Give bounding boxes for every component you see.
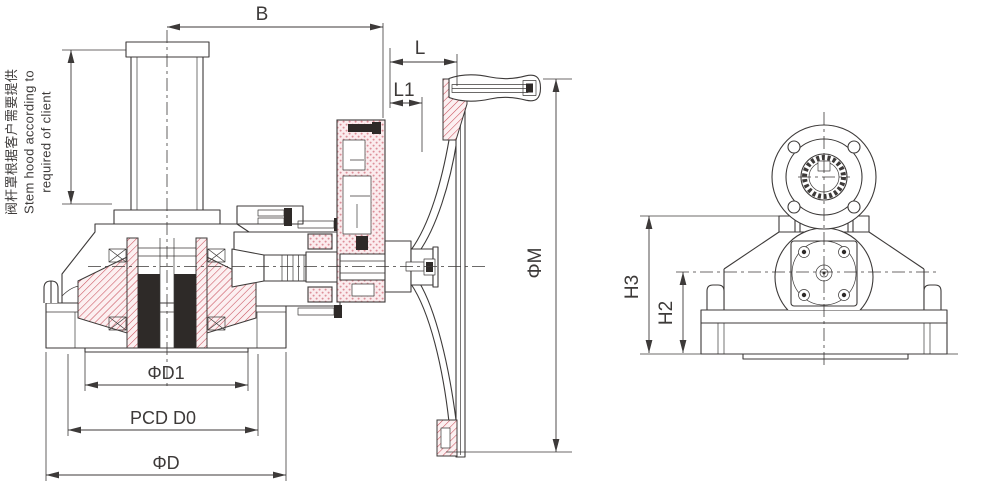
- note-line-chinese: 阀杆罩根据客户需要提供: [4, 69, 19, 215]
- phi-d1-label: ΦD1: [147, 363, 184, 383]
- stud-head-top: [284, 208, 292, 217]
- worm-spline-section: [264, 255, 306, 281]
- handle-end-core: [526, 84, 533, 93]
- right-view-section: H3 H2: [622, 112, 958, 368]
- cover-window-1: [343, 140, 365, 170]
- cover-top-bolt: [348, 124, 372, 132]
- input-shaft-exit: [340, 254, 386, 280]
- flange-bolt-hole: [788, 201, 800, 213]
- shaft-step: [306, 252, 340, 282]
- dimension-hood-height: [62, 50, 126, 204]
- flange-bolt-hole: [788, 141, 800, 153]
- technical-drawing: B L L1 ΦM ΦD1: [0, 0, 1001, 503]
- plate-bolt-core: [802, 293, 806, 297]
- l-label: L: [415, 38, 426, 59]
- stem-nut-right: [174, 274, 196, 348]
- handwheel: [385, 75, 541, 457]
- stud-head-bottom: [284, 217, 292, 226]
- drawing-canvas: B L L1 ΦM ΦD1: [0, 0, 1001, 503]
- spoke-top: [411, 140, 457, 252]
- cover-housing: [337, 120, 386, 302]
- pcd-d0-label: PCD D0: [130, 408, 196, 428]
- base-spigot: [85, 348, 248, 352]
- cover-internal-block: [356, 236, 368, 250]
- stem-hood-note: 阀杆罩根据客户需要提供 Stem hood according to requi…: [4, 69, 54, 215]
- rim-section-hole: [441, 428, 450, 448]
- spoke-bottom: [411, 282, 456, 422]
- bearing-boss: [237, 206, 303, 224]
- left-view-section: B L L1 ΦM ΦD1: [4, 4, 572, 481]
- cover-window-3: [352, 284, 374, 296]
- stem-nut-left: [138, 274, 160, 348]
- rv-bottom-plate: [743, 354, 908, 359]
- nut-sleeve-left: [127, 238, 138, 348]
- flange-bolt-hole: [848, 201, 860, 213]
- h3-label: H3: [622, 275, 643, 299]
- phi-d-label: ΦD: [152, 453, 179, 473]
- hub-nut-core: [426, 262, 433, 272]
- plate-bolt-core: [842, 250, 846, 254]
- phi-m-label: ΦM: [525, 248, 546, 279]
- bearing-cap-bottom: [308, 287, 332, 302]
- left-boss: [44, 281, 58, 303]
- dimension-h2: H2: [656, 272, 683, 353]
- hood-cap: [126, 42, 209, 57]
- l1-label: L1: [393, 80, 414, 101]
- plate-bolt-core: [802, 250, 806, 254]
- flange-bolt-hole: [848, 141, 860, 153]
- dimension-l1: L1: [390, 80, 422, 152]
- worm-cone: [232, 249, 264, 287]
- cap-bolt-bottom: [298, 308, 334, 315]
- rv-side-lug-left: [707, 285, 724, 310]
- plate-bolt-core: [842, 293, 846, 297]
- cap-bolt-bottom-head: [334, 305, 342, 318]
- nut-sleeve-right: [196, 238, 207, 348]
- dimension-phi-d1: ΦD1: [85, 352, 248, 391]
- bearing-cap-top: [308, 234, 332, 249]
- cover-top-bolt-head: [372, 122, 381, 134]
- note-line-english-2: required of client: [39, 91, 54, 193]
- hood-extension-lines: [62, 50, 126, 204]
- h2-label: H2: [656, 301, 677, 325]
- b-label: B: [256, 4, 269, 25]
- note-line-english-1: Stem hood according to: [22, 70, 37, 214]
- rv-side-lug-right: [924, 285, 941, 310]
